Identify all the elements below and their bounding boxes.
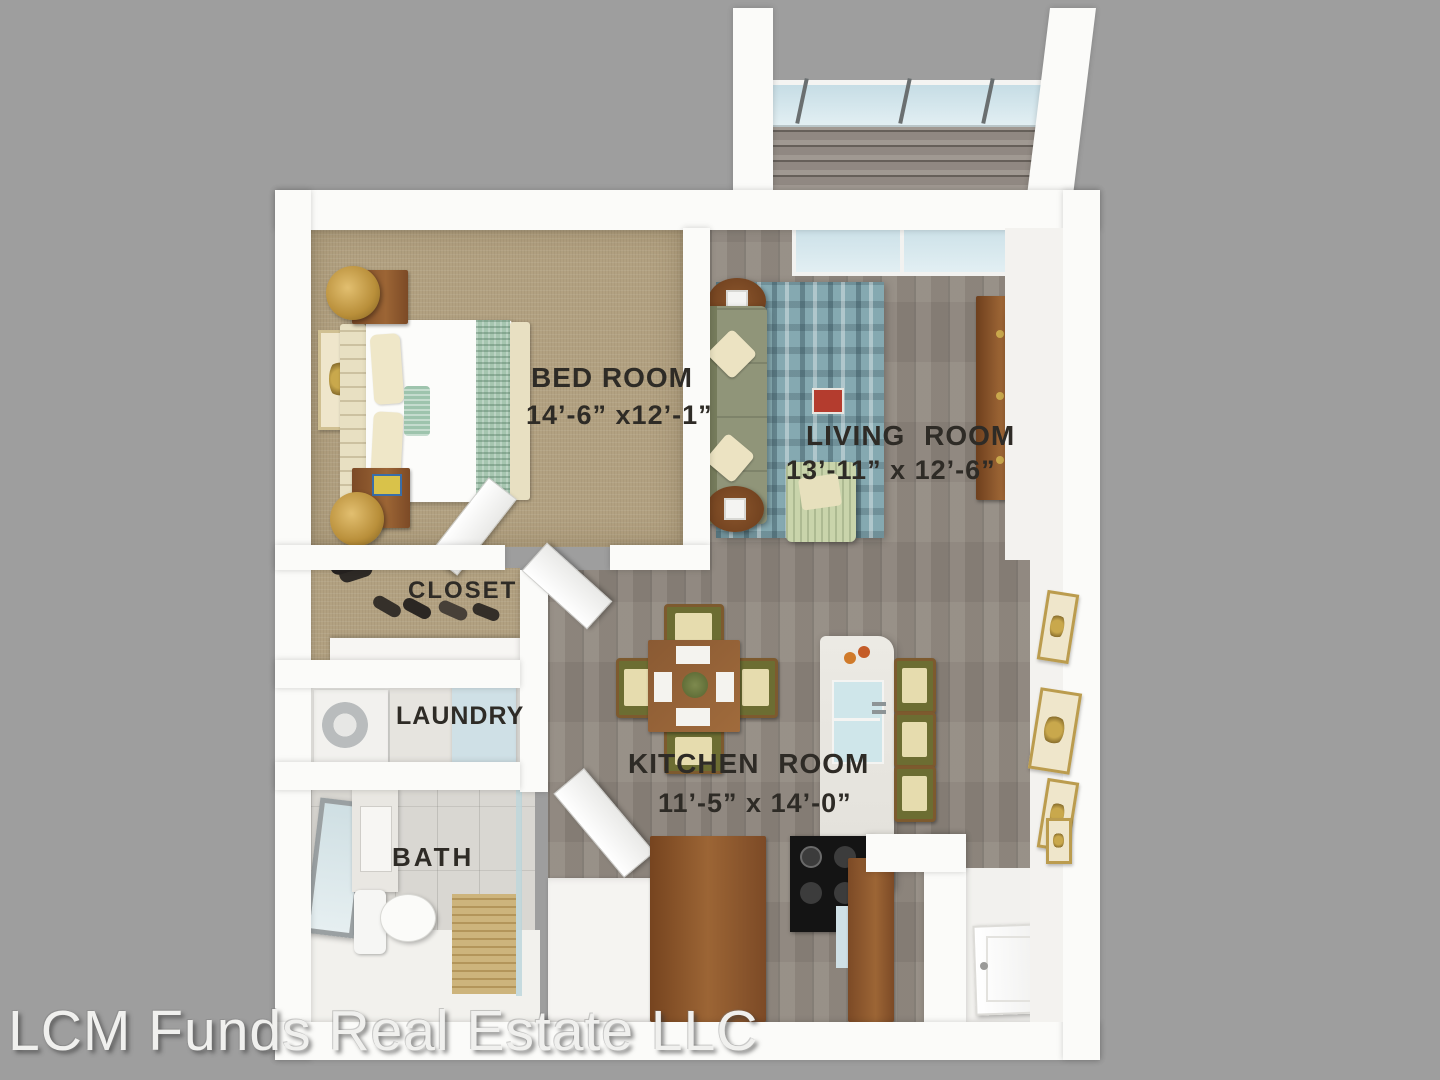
kitchen-dimensions: 11’-5” x 14’-0” xyxy=(658,788,852,819)
bed-accent-pillow xyxy=(404,386,430,436)
door-handle-icon xyxy=(980,962,988,970)
dining-chair xyxy=(734,658,778,718)
bedroom-label: BED ROOM xyxy=(531,362,693,394)
candle xyxy=(724,498,746,520)
right-wall-inner-face-upper xyxy=(1005,228,1063,560)
left-wall xyxy=(275,190,311,1060)
placemat xyxy=(716,672,734,702)
kitchen-cabinet xyxy=(650,836,766,1022)
living-room-dimensions: 13’-11” x 12’-6” xyxy=(786,455,996,486)
console-knob xyxy=(996,392,1004,400)
toilet-bowl xyxy=(380,894,436,942)
bedroom-bottom-wall xyxy=(275,545,505,570)
living-room-label: LIVING ROOM xyxy=(806,420,1015,452)
laundry-bath-wall xyxy=(275,762,520,790)
placemat xyxy=(676,646,710,664)
balcony-right-wall xyxy=(1027,8,1096,194)
laundry-label: LAUNDRY xyxy=(396,702,524,731)
vanity-sink xyxy=(360,806,392,872)
placemat xyxy=(676,708,710,726)
shower-bamboo-mat xyxy=(452,894,516,994)
table-lamp xyxy=(330,492,384,546)
washer-door-icon xyxy=(322,702,368,748)
sink-faucet-icon xyxy=(872,710,886,714)
balcony-deck-floor xyxy=(773,118,1050,192)
stove-burner-icon xyxy=(800,846,822,868)
centerpiece-plant xyxy=(682,672,708,698)
bar-stool xyxy=(894,658,936,714)
kitchen-cabinet xyxy=(848,858,894,1022)
console-knob xyxy=(996,330,1004,338)
placemat xyxy=(654,672,672,702)
kitchen-label: KITCHEN ROOM xyxy=(628,748,869,780)
balcony-glass-railing xyxy=(773,80,1050,127)
bed-runner-blanket xyxy=(476,320,510,502)
closet-laundry-wall xyxy=(275,660,520,688)
shower-glass-panel xyxy=(516,790,522,996)
closet-hall-wall xyxy=(520,570,548,792)
bath-label: BATH xyxy=(392,842,474,873)
table-lamp xyxy=(326,266,380,320)
book-on-nightstand xyxy=(372,474,402,496)
floorplan-canvas: BED ROOM 14’-6” x12’-1” LIVING ROOM 13’-… xyxy=(0,0,1440,1080)
bedroom-bottom-wall xyxy=(610,545,710,570)
watermark-text: LCM Funds Real Estate LLC xyxy=(8,998,759,1064)
console-knob xyxy=(996,456,1004,464)
bar-stool xyxy=(894,712,936,768)
bar-stool xyxy=(894,766,936,822)
island-decor xyxy=(844,652,856,664)
coffee-table-book xyxy=(812,388,844,414)
bed-pillow xyxy=(370,333,405,405)
sink-divider xyxy=(832,718,880,721)
entry-wall-art xyxy=(1046,818,1072,864)
balcony-left-wall xyxy=(733,8,773,194)
closet-label: CLOSET xyxy=(408,577,517,605)
bedroom-dimensions: 14’-6” x12’-1” xyxy=(526,400,713,431)
closet-shelf xyxy=(330,638,520,662)
entry-counter-wall xyxy=(866,834,966,872)
top-wall xyxy=(275,190,1100,230)
